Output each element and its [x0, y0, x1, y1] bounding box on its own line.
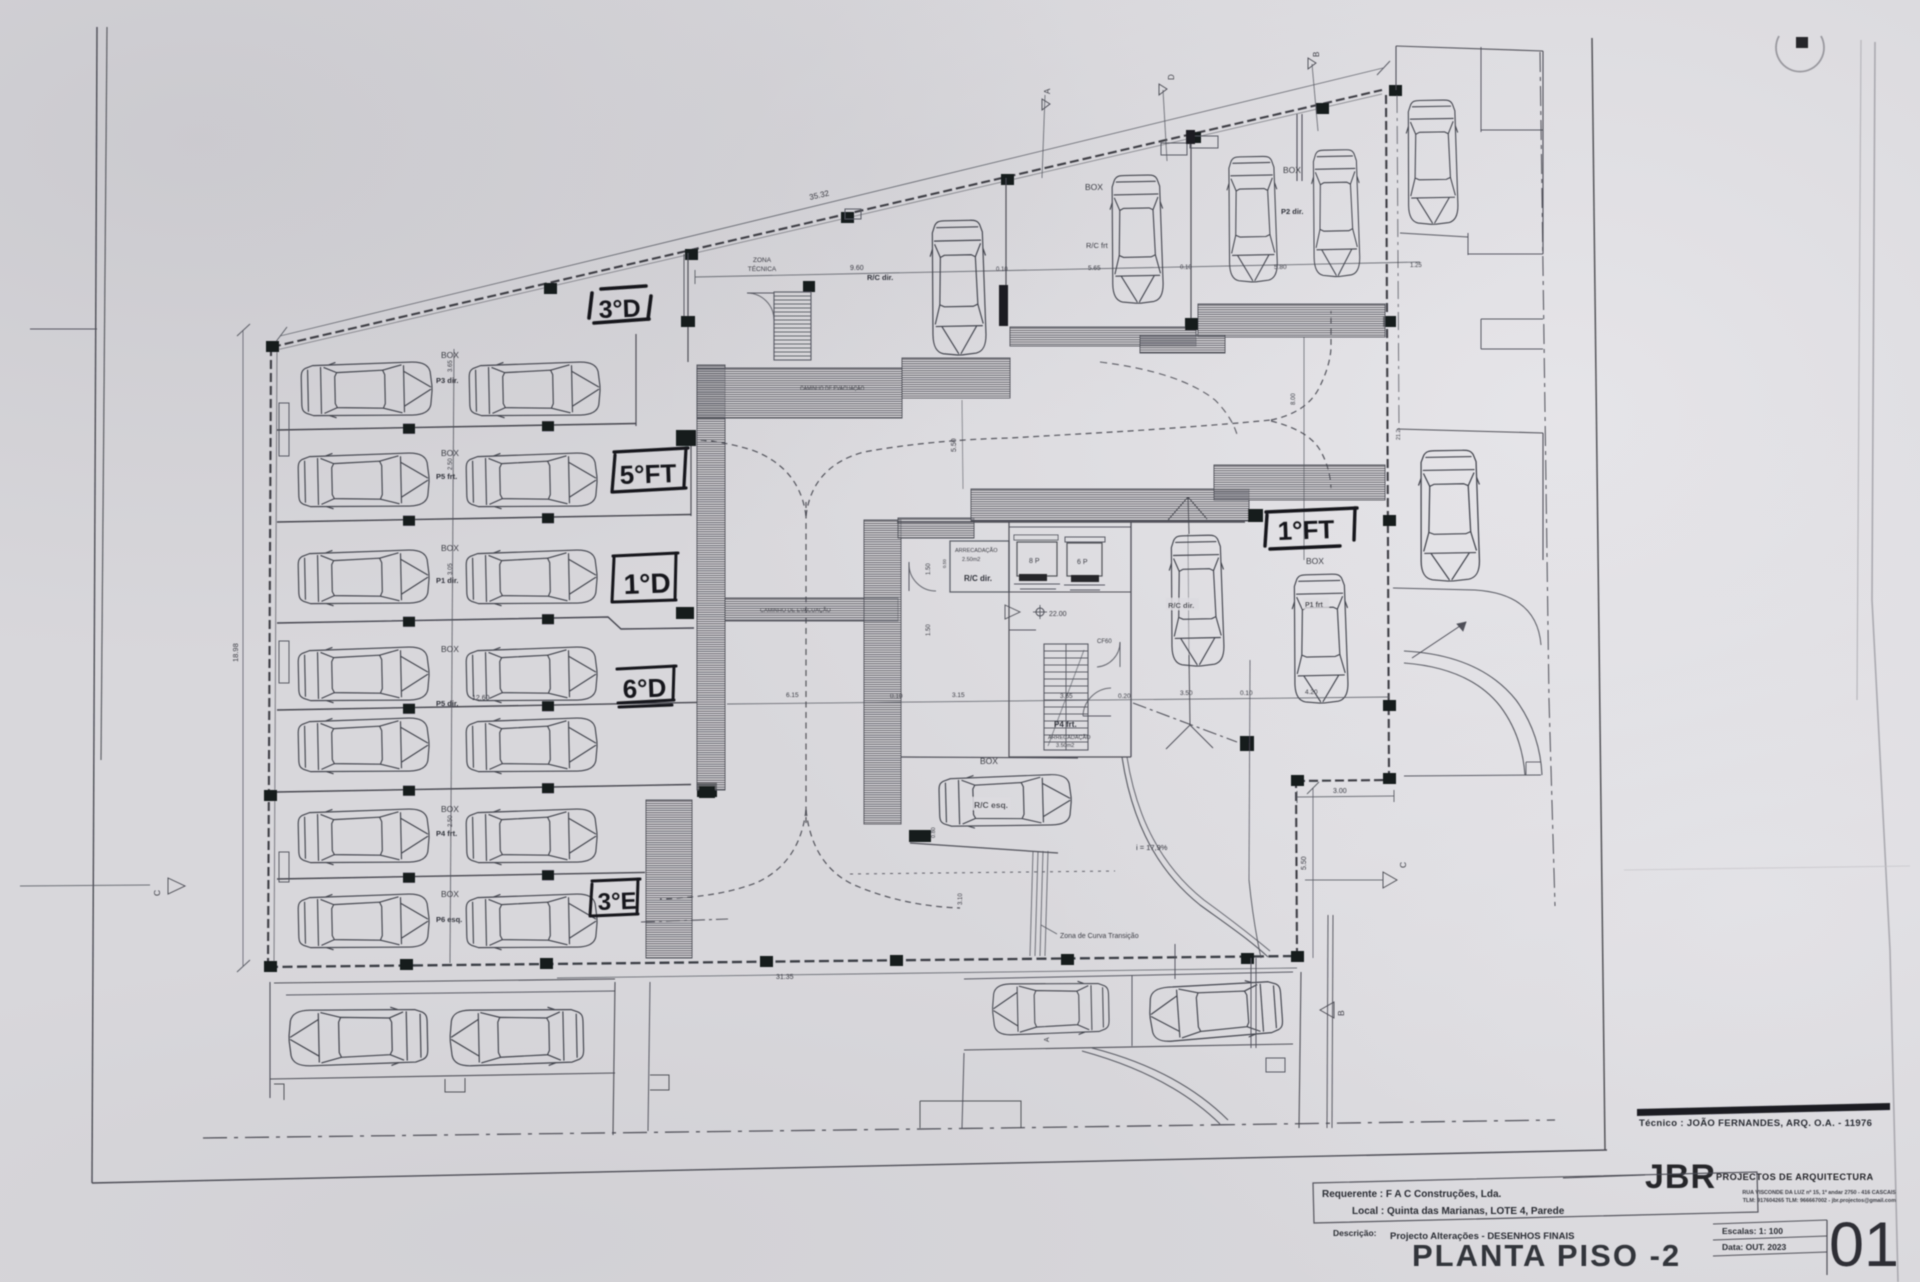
- svg-text:5.80: 5.80: [1274, 264, 1287, 271]
- svg-text:P1 dir.: P1 dir.: [436, 576, 459, 585]
- svg-text:5.50: 5.50: [1301, 856, 1308, 870]
- svg-text:Data: OUT. 2023: Data: OUT. 2023: [1722, 1242, 1787, 1252]
- svg-text:0.20: 0.20: [1118, 693, 1131, 700]
- svg-text:1.50: 1.50: [926, 624, 932, 636]
- svg-text:TLM: 917604265 TLM: 966667002: TLM: 917604265 TLM: 966667002 - jbr.proj…: [1743, 1198, 1896, 1204]
- svg-text:BOX: BOX: [441, 448, 459, 458]
- svg-text:3.65: 3.65: [448, 360, 454, 372]
- svg-text:ARRECADAÇÃO: ARRECADAÇÃO: [955, 547, 998, 554]
- svg-text:3°E: 3°E: [597, 888, 637, 916]
- svg-text:B: B: [1336, 1010, 1346, 1016]
- svg-text:P5 frt.: P5 frt.: [436, 472, 457, 481]
- svg-text:0.50: 0.50: [942, 559, 947, 568]
- svg-text:5.65: 5.65: [1088, 265, 1101, 272]
- svg-text:P3 dir.: P3 dir.: [436, 376, 459, 385]
- svg-text:C: C: [1398, 862, 1408, 868]
- svg-text:A: A: [1044, 1037, 1051, 1042]
- svg-text:22.00: 22.00: [1049, 611, 1067, 618]
- svg-text:3°D: 3°D: [598, 295, 641, 324]
- svg-text:R/C esq.: R/C esq.: [974, 800, 1008, 810]
- svg-text:0.10: 0.10: [890, 693, 903, 700]
- svg-text:P2 dir.: P2 dir.: [1281, 207, 1304, 216]
- svg-text:18.98: 18.98: [231, 643, 240, 662]
- svg-text:CAMINHO DE EVACUAÇÃO: CAMINHO DE EVACUAÇÃO: [800, 385, 864, 392]
- svg-text:ZONA: ZONA: [753, 257, 772, 264]
- svg-text:2.50m2: 2.50m2: [962, 557, 980, 563]
- svg-text:i = 17,9%: i = 17,9%: [1136, 843, 1168, 852]
- svg-text:1.50: 1.50: [926, 563, 932, 575]
- svg-text:3.65: 3.65: [1060, 693, 1073, 700]
- svg-text:Requerente : F A C Construçõe: Requerente : F A C Construções, Lda.: [1322, 1189, 1502, 1200]
- svg-text:3.50: 3.50: [1180, 690, 1193, 697]
- svg-text:A: A: [1043, 88, 1052, 94]
- svg-text:3.50m2: 3.50m2: [1056, 743, 1074, 749]
- svg-text:4.20: 4.20: [1305, 689, 1318, 696]
- svg-text:3.10: 3.10: [958, 893, 964, 905]
- svg-text:3.15: 3.15: [952, 692, 965, 699]
- svg-text:RUA VISCONDE DA LUZ nº 15, 1º: RUA VISCONDE DA LUZ nº 15, 1º andar 2750…: [1742, 1190, 1896, 1196]
- svg-text:1°FT: 1°FT: [1277, 514, 1335, 546]
- svg-text:P6 esq.: P6 esq.: [436, 915, 462, 924]
- svg-text:8 P: 8 P: [1029, 558, 1040, 565]
- svg-text:BOX: BOX: [441, 644, 459, 654]
- svg-text:R/C dir.: R/C dir.: [964, 574, 992, 583]
- svg-text:0.10: 0.10: [1240, 690, 1253, 697]
- svg-text:P4 frt.: P4 frt.: [436, 829, 457, 838]
- svg-text:ARRECADAÇÃO: ARRECADAÇÃO: [1048, 734, 1091, 741]
- svg-text:JBR: JBR: [1645, 1158, 1716, 1196]
- svg-text:Local : Quinta das Marianas, L: Local : Quinta das Marianas, LOTE 4, Par…: [1352, 1206, 1565, 1217]
- svg-text:3.00: 3.00: [1333, 788, 1347, 795]
- svg-text:2.50: 2.50: [448, 815, 454, 827]
- svg-text:9.60: 9.60: [850, 265, 864, 272]
- svg-text:BOX: BOX: [1306, 556, 1324, 566]
- svg-text:BOX: BOX: [1283, 165, 1301, 175]
- svg-text:0.80: 0.80: [931, 827, 937, 838]
- svg-text:Zona de Curva Transição: Zona de Curva Transição: [1060, 933, 1139, 940]
- svg-text:TÉCNICA: TÉCNICA: [748, 264, 777, 273]
- svg-text:R/C frt: R/C frt: [1086, 241, 1109, 250]
- svg-text:BOX: BOX: [441, 543, 459, 553]
- svg-text:BOX: BOX: [441, 804, 459, 814]
- svg-text:BOX: BOX: [1085, 182, 1103, 192]
- svg-text:PLANTA PISO -2: PLANTA PISO -2: [1412, 1238, 1681, 1273]
- svg-text:P1 frt: P1 frt: [1305, 602, 1324, 609]
- svg-text:8.00: 8.00: [1291, 393, 1297, 405]
- svg-text:BOX: BOX: [441, 350, 459, 360]
- svg-text:CAMINHO DE EVACUAÇÃO: CAMINHO DE EVACUAÇÃO: [760, 607, 832, 614]
- svg-text:21.2: 21.2: [1396, 429, 1402, 440]
- svg-text:3.05: 3.05: [448, 563, 454, 575]
- svg-text:1°D: 1°D: [623, 567, 671, 600]
- svg-text:PROJECTOS DE ARQUITECTURA: PROJECTOS DE ARQUITECTURA: [1716, 1172, 1874, 1182]
- svg-text:Descrição:: Descrição:: [1333, 1228, 1377, 1238]
- svg-text:P5 dir.: P5 dir.: [436, 699, 459, 708]
- svg-text:D: D: [1167, 74, 1176, 80]
- svg-text:Técnico : JOÃO FERNANDES, ARQ.: Técnico : JOÃO FERNANDES, ARQ. O.A. - 11…: [1639, 1118, 1872, 1129]
- svg-text:BOX: BOX: [441, 889, 459, 899]
- svg-text:5°FT: 5°FT: [619, 458, 677, 490]
- svg-text:6°D: 6°D: [622, 672, 667, 704]
- svg-text:B: B: [1312, 52, 1321, 57]
- svg-text:31.35: 31.35: [776, 974, 794, 981]
- svg-text:2.50: 2.50: [448, 458, 454, 470]
- svg-text:6.15: 6.15: [786, 692, 799, 699]
- svg-text:R/C dir.: R/C dir.: [867, 273, 893, 282]
- svg-text:R/C dir.: R/C dir.: [1168, 601, 1194, 610]
- svg-text:BOX: BOX: [980, 756, 998, 766]
- svg-text:C: C: [152, 890, 162, 896]
- svg-text:P4 frt.: P4 frt.: [1054, 720, 1077, 729]
- svg-text:CF60: CF60: [1097, 639, 1112, 645]
- svg-text:1.25: 1.25: [1410, 263, 1422, 269]
- svg-text:Escalas: 1: 100: Escalas: 1: 100: [1722, 1226, 1783, 1236]
- svg-text:01: 01: [1829, 1210, 1899, 1280]
- svg-text:6 P: 6 P: [1077, 559, 1088, 566]
